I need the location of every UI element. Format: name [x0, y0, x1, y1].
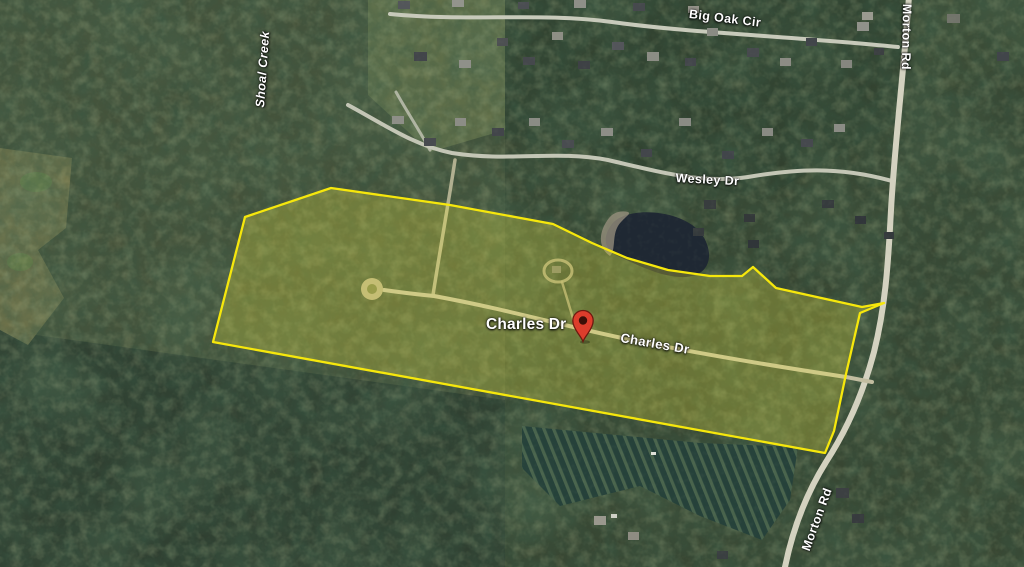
map-canvas[interactable]: Big Oak Cir Morton Rd Shoal Creek Wesley…	[0, 0, 1024, 567]
map-pin-icon	[571, 309, 595, 344]
road-label-morton-rd-top: Morton Rd	[899, 4, 914, 70]
map-pin[interactable]	[571, 309, 595, 344]
satellite-imagery	[0, 0, 1024, 567]
road-label-charles-dr-primary: Charles Dr	[486, 316, 566, 334]
